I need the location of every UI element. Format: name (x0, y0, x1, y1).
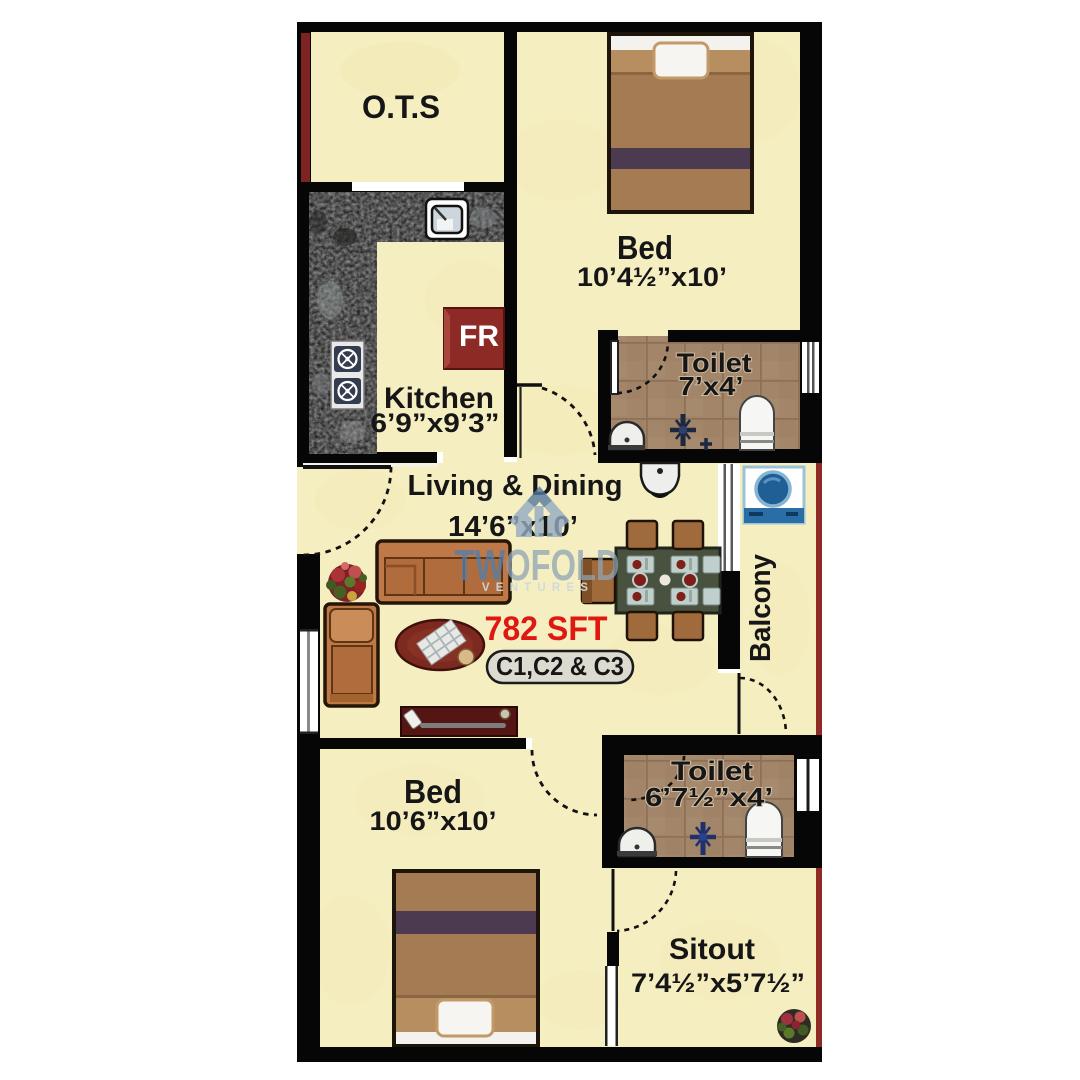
svg-text:Bed: Bed (617, 229, 673, 266)
svg-text:Balcony: Balcony (745, 554, 777, 662)
svg-text:10’4½”x10’: 10’4½”x10’ (577, 262, 727, 292)
svg-text:782 SFT: 782 SFT (485, 610, 608, 648)
svg-text:VENTURES: VENTURES (482, 582, 594, 594)
svg-text:O.T.S: O.T.S (362, 89, 440, 125)
svg-text:7’x4’: 7’x4’ (679, 371, 744, 401)
svg-text:Living & Dining: Living & Dining (408, 470, 623, 502)
svg-text:FR: FR (459, 320, 499, 353)
svg-text:10’6”x10’: 10’6”x10’ (370, 806, 497, 836)
svg-text:6’7½”x4’: 6’7½”x4’ (645, 782, 773, 812)
svg-text:6’9”x9’3”: 6’9”x9’3” (371, 408, 500, 438)
svg-text:C1,C2 & C3: C1,C2 & C3 (496, 651, 624, 681)
svg-text:7’4½”x5’7½”: 7’4½”x5’7½” (631, 968, 805, 998)
svg-text:Sitout: Sitout (669, 933, 755, 966)
svg-text:Bed: Bed (404, 773, 462, 810)
